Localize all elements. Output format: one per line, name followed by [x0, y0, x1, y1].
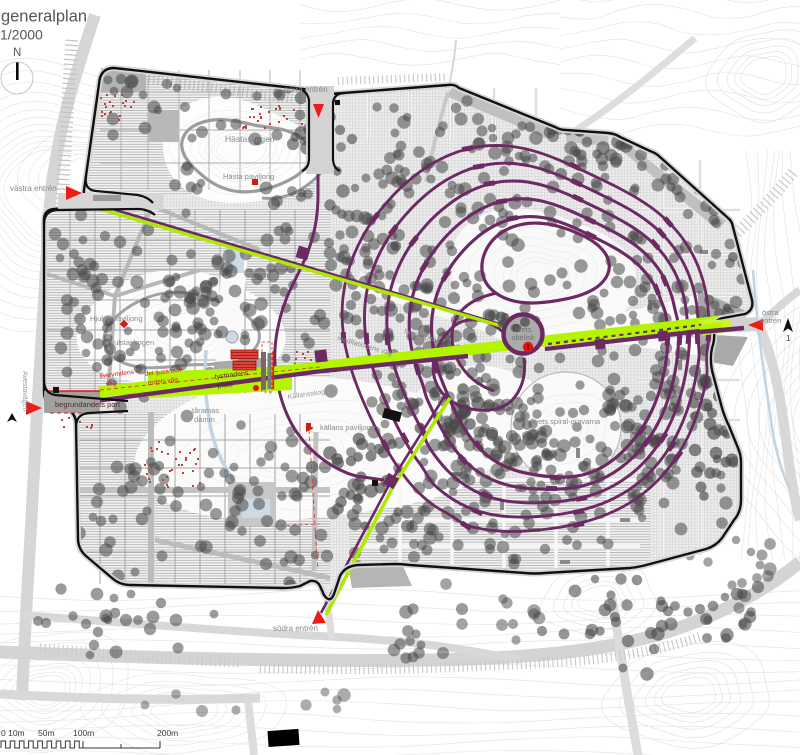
svg-text:livets spiral-gravarna: livets spiral-gravarna: [531, 417, 601, 426]
svg-text:200m: 200m: [157, 728, 178, 738]
svg-text:södra entrén: södra entrén: [273, 624, 318, 633]
svg-text:entrén: entrén: [760, 316, 781, 325]
svg-text:1: 1: [786, 334, 791, 343]
svg-text:västra entrén: västra entrén: [10, 184, 57, 193]
svg-text:1/2000: 1/2000: [0, 27, 43, 43]
svg-text:Hjulstaskogen: Hjulstaskogen: [107, 338, 154, 347]
svg-text:generalplan: generalplan: [1, 8, 87, 26]
svg-text:obelisk: obelisk: [511, 333, 535, 342]
svg-text:damm: damm: [194, 415, 215, 424]
svg-text:källans paviljong: källans paviljong: [320, 423, 375, 432]
svg-text:50m: 50m: [38, 728, 55, 738]
svg-text:väg: väg: [105, 380, 117, 388]
svg-text:Hästa paviljong: Hästa paviljong: [223, 172, 274, 181]
svg-text:norra entrén: norra entrén: [284, 85, 328, 94]
svg-text:Avestavägen: Avestavägen: [21, 371, 28, 411]
svg-text:begrundandets port: begrundandets port: [55, 400, 121, 409]
svg-text:0 10m: 0 10m: [1, 728, 25, 738]
svg-text:Hjulstapaviljong: Hjulstapaviljong: [90, 314, 143, 323]
svg-text:Hästaskogen: Hästaskogen: [225, 134, 275, 144]
svg-text:N: N: [13, 47, 21, 59]
svg-text:tåramas: tåramas: [192, 406, 219, 415]
svg-text:100m: 100m: [73, 728, 94, 738]
